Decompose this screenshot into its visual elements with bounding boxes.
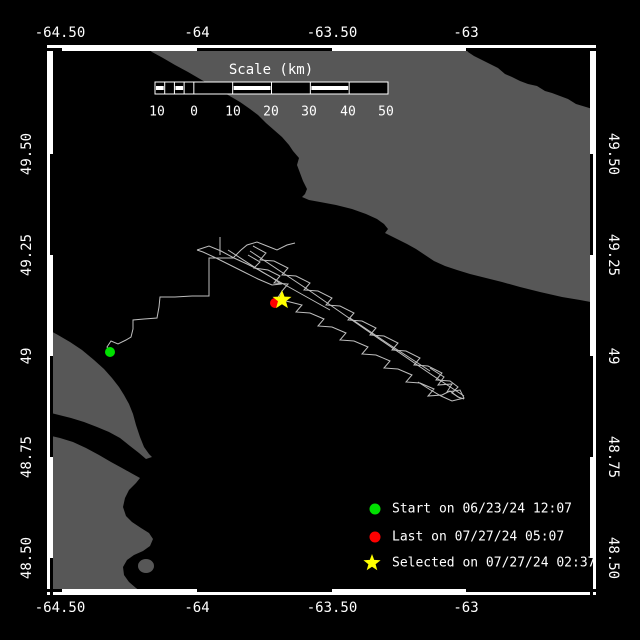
frame-tick-segment-top-0 (47, 48, 62, 51)
scalebar-distance-label-6: 50 (378, 106, 394, 119)
right-axis-latitude-label-4: 48.50 (606, 537, 620, 579)
frame-tick-segment-left-2 (50, 558, 53, 595)
start-position-marker[interactable] (105, 347, 115, 357)
left-axis-latitude-label-2: 49 (20, 348, 34, 365)
bottom-axis-longitude-label-1: -64 (184, 601, 209, 615)
scalebar-distance-label-5: 40 (340, 106, 356, 119)
top-axis-longitude-label-2: -63.50 (307, 26, 358, 40)
small-island-landmass (138, 559, 154, 573)
scalebar-distance-label-2: 10 (225, 106, 241, 119)
legend-last-dot-icon (370, 532, 381, 543)
scalebar-title: Scale (km) (229, 63, 313, 77)
map-frame-band-left (47, 45, 53, 595)
bottom-axis-longitude-label-3: -63 (453, 601, 478, 615)
frame-tick-segment-left-1 (50, 356, 53, 457)
frame-tick-segment-bottom-2 (466, 589, 596, 592)
right-axis-latitude-label-2: 49 (606, 348, 620, 365)
gaspe-mainland-landmass (47, 435, 153, 597)
scalebar-distance-label-1: 0 (190, 106, 198, 119)
bottom-axis-longitude-label-2: -63.50 (307, 601, 358, 615)
top-axis-longitude-label-3: -63 (453, 26, 478, 40)
frame-tick-segment-right-0 (590, 154, 593, 255)
scalebar-sub-stripe (175, 86, 183, 90)
left-axis-latitude-label-3: 48.75 (20, 436, 34, 478)
scalebar-sub-stripe (156, 86, 164, 90)
left-axis-latitude-label-1: 49.25 (20, 234, 34, 276)
scalebar-distance-label-3: 20 (263, 106, 279, 119)
bottom-axis-longitude-label-0: -64.50 (35, 601, 86, 615)
frame-tick-segment-left-0 (50, 154, 53, 255)
frame-tick-segment-bottom-1 (197, 589, 332, 592)
legend-item-label-0: Start on 06/23/24 12:07 (392, 503, 572, 516)
frame-tick-segment-top-1 (197, 48, 332, 51)
scalebar-distance-label-0: 10 (149, 106, 165, 119)
scalebar-distance-label-4: 30 (301, 106, 317, 119)
frame-tick-segment-bottom-0 (47, 589, 62, 592)
scalebar (155, 82, 388, 94)
top-axis-longitude-label-0: -64.50 (35, 26, 86, 40)
legend-item-label-2: Selected on 07/27/24 02:37 (392, 557, 596, 570)
frame-tick-segment-top-2 (466, 48, 596, 51)
top-axis-longitude-label-1: -64 (184, 26, 209, 40)
scalebar-stripe (311, 86, 348, 90)
legend-selected-star-icon (363, 554, 380, 570)
left-axis-latitude-label-4: 48.50 (20, 537, 34, 579)
right-axis-latitude-label-0: 49.50 (606, 133, 620, 175)
legend-start-dot-icon (370, 504, 381, 515)
right-axis-latitude-label-3: 48.75 (606, 436, 620, 478)
left-axis-latitude-label-0: 49.50 (20, 133, 34, 175)
frame-tick-segment-right-1 (590, 356, 593, 457)
legend-item-label-1: Last on 07/27/24 05:07 (392, 531, 564, 544)
scalebar-stripe (234, 86, 271, 90)
track-path-3[interactable] (248, 255, 464, 399)
tracking-map-screen: Scale (km) -64.50-64-63.50-63-64.50-64-6… (0, 0, 640, 640)
track-path-0[interactable] (107, 242, 295, 352)
track-path-1[interactable] (250, 251, 464, 396)
right-axis-latitude-label-1: 49.25 (606, 234, 620, 276)
map-frame-band-right (590, 45, 596, 595)
